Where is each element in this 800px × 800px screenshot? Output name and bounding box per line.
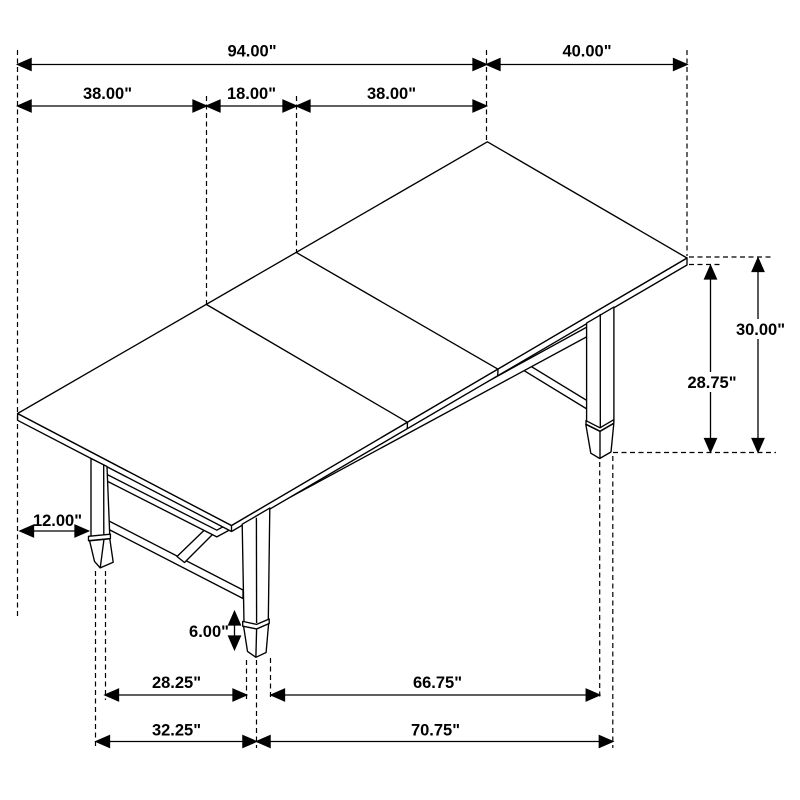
svg-text:38.00": 38.00" <box>83 85 132 103</box>
svg-text:28.25": 28.25" <box>152 674 201 692</box>
svg-text:18.00": 18.00" <box>227 85 276 103</box>
svg-text:28.75": 28.75" <box>687 374 736 392</box>
svg-text:38.00": 38.00" <box>367 85 416 103</box>
svg-text:40.00": 40.00" <box>562 43 611 61</box>
svg-text:6.00": 6.00" <box>189 623 229 641</box>
svg-text:70.75": 70.75" <box>411 722 460 740</box>
svg-text:66.75": 66.75" <box>413 674 462 692</box>
svg-text:30.00": 30.00" <box>736 321 785 339</box>
svg-text:94.00": 94.00" <box>227 43 276 61</box>
svg-text:32.25": 32.25" <box>152 722 201 740</box>
svg-text:12.00": 12.00" <box>33 512 82 530</box>
